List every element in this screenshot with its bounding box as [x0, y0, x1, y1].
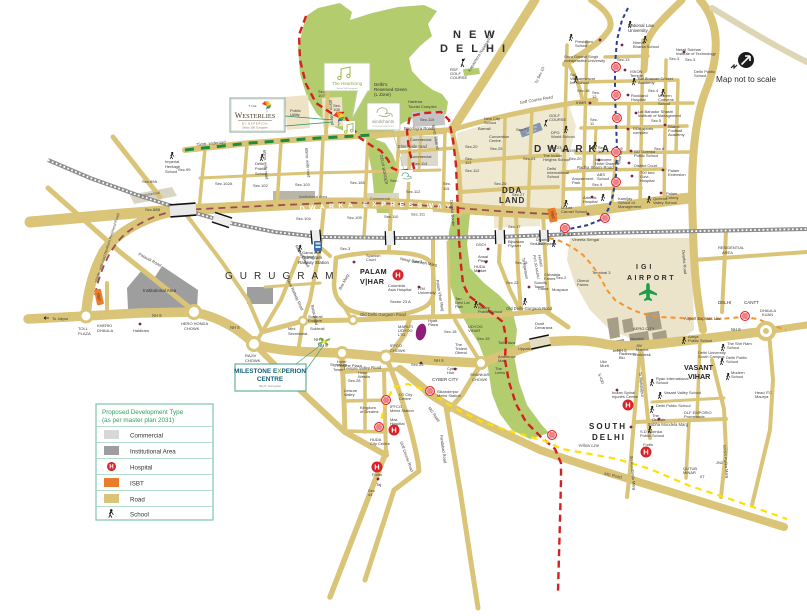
svg-text:BY EXPERION: BY EXPERION: [242, 121, 268, 125]
svg-text:Farms: Farms: [544, 276, 555, 281]
svg-text:Sec.20: Sec.20: [569, 156, 582, 161]
svg-text:Commercial: Commercial: [410, 137, 431, 142]
svg-text:Hospital: Hospital: [631, 97, 646, 102]
svg-text:University: University: [418, 290, 436, 295]
svg-text:Centre: Centre: [399, 396, 412, 401]
svg-text:Uppals: Uppals: [518, 346, 530, 351]
svg-text:Sec.29: Sec.29: [516, 127, 529, 132]
svg-text:South Campus: South Campus: [698, 354, 724, 359]
svg-text:Hub: Hub: [447, 370, 455, 375]
svg-text:Bhartia School: Bhartia School: [633, 44, 659, 49]
svg-text:Sec.25: Sec.25: [411, 362, 424, 367]
svg-text:V|HAR: V|HAR: [360, 277, 385, 286]
svg-text:Leela: Leela: [495, 370, 506, 375]
svg-text:Sec.19: Sec.19: [477, 336, 490, 341]
svg-text:CANTT: CANTT: [744, 300, 759, 305]
svg-text:Sector 23 A: Sector 23 A: [390, 299, 411, 304]
svg-text:Secretariat: Secretariat: [288, 331, 308, 336]
svg-text:Sec.110: Sec.110: [384, 214, 399, 219]
svg-text:Plaza: Plaza: [478, 258, 489, 263]
svg-text:Devarana: Devarana: [535, 325, 553, 330]
svg-text:Extension: Extension: [668, 172, 686, 177]
svg-text:Hospital: Hospital: [130, 465, 152, 472]
svg-text:Maurya: Maurya: [755, 394, 769, 399]
svg-text:Sec.18: Sec.18: [577, 88, 590, 93]
svg-text:Sec.5: Sec.5: [651, 118, 662, 123]
svg-text:AREA: AREA: [722, 250, 733, 255]
svg-text:Sec.13: Sec.13: [617, 57, 630, 62]
svg-text:Sec.27: Sec.27: [512, 192, 525, 197]
svg-text:District Court: District Court: [634, 163, 658, 168]
svg-text:(as per master plan 2031): (as per master plan 2031): [102, 417, 174, 424]
svg-text:Underpass: Underpass: [536, 241, 555, 246]
svg-text:Haldiram: Haldiram: [133, 328, 150, 333]
svg-text:Commercial: Commercial: [370, 197, 390, 201]
svg-text:Radha Soami Road: Radha Soami Road: [577, 165, 614, 170]
svg-text:Barnall: Barnall: [478, 126, 491, 131]
svg-text:Fortis: Fortis: [643, 442, 653, 447]
svg-text:COURSE: COURSE: [450, 75, 467, 80]
svg-text:Sec.25: Sec.25: [490, 146, 503, 151]
svg-text:School: School: [575, 43, 587, 48]
svg-text:Novotel: Novotel: [630, 336, 644, 341]
svg-text:School: School: [727, 345, 739, 350]
svg-text:CHOWK: CHOWK: [245, 358, 261, 363]
svg-text:10: 10: [598, 149, 603, 154]
svg-text:Sec.28: Sec.28: [348, 378, 361, 383]
svg-text:Valley School: Valley School: [653, 200, 677, 205]
svg-text:Tourist Complex: Tourist Complex: [408, 104, 437, 109]
svg-text:Sec.22: Sec.22: [506, 280, 519, 285]
svg-text:Sec.186: Sec.186: [350, 180, 365, 185]
svg-text:School: School: [484, 120, 496, 125]
svg-text:Oberoi: Oberoi: [455, 350, 467, 355]
svg-text:Flyover: Flyover: [508, 243, 522, 248]
svg-text:JN2: JN2: [716, 460, 724, 465]
svg-text:Terminal 3: Terminal 3: [592, 270, 611, 275]
svg-text:IIT: IIT: [700, 474, 705, 479]
svg-text:Enclave: Enclave: [308, 318, 323, 323]
svg-text:WESTERLIES: WESTERLIES: [235, 111, 276, 120]
svg-text:Sec.20: Sec.20: [465, 144, 478, 149]
svg-text:Map not to scale: Map not to scale: [716, 75, 777, 84]
svg-text:Sec.17: Sec.17: [508, 224, 521, 229]
svg-text:Injuries Centre: Injuries Centre: [612, 394, 639, 399]
svg-text:Metro Station: Metro Station: [390, 408, 414, 413]
svg-text:School: School: [726, 359, 738, 364]
svg-text:CHOWK: CHOWK: [390, 348, 406, 353]
svg-text:Heights School: Heights School: [543, 157, 570, 162]
svg-text:Bagdogra Road: Bagdogra Road: [404, 126, 434, 131]
svg-text:107: 107: [318, 93, 325, 98]
svg-text:12: 12: [592, 94, 597, 99]
svg-text:Plaza: Plaza: [428, 322, 439, 327]
svg-text:Hospital: Hospital: [640, 178, 655, 183]
svg-text:Market: Market: [474, 268, 487, 273]
svg-text:Sector 108 Gurugram: Sector 108 Gurugram: [336, 87, 357, 90]
svg-text:Commercial: Commercial: [410, 154, 431, 159]
svg-text:IGI: IGI: [636, 264, 654, 271]
svg-text:Institute of Management: Institute of Management: [638, 113, 682, 118]
svg-text:of Dreams: of Dreams: [360, 409, 378, 414]
svg-text:NH 8: NH 8: [230, 325, 240, 330]
svg-text:GURUGRAM: GURUGRAM: [225, 271, 340, 282]
svg-text:Vasant Valley School: Vasant Valley School: [664, 390, 701, 395]
svg-text:Sec.104: Sec.104: [296, 216, 311, 221]
svg-text:NH-8, Gurugram: NH-8, Gurugram: [259, 384, 282, 388]
svg-text:School: School: [597, 176, 609, 181]
svg-text:City Centre: City Centre: [370, 441, 391, 446]
svg-text:CENTRE: CENTRE: [257, 376, 284, 383]
svg-text:Sec.112: Sec.112: [465, 168, 480, 173]
svg-text:Delhi Public School: Delhi Public School: [656, 403, 691, 408]
svg-text:Mospace: Mospace: [552, 287, 569, 292]
svg-text:Hospital: Hospital: [390, 421, 405, 426]
svg-text:Park: Park: [572, 180, 580, 185]
svg-text:SOUTH: SOUTH: [589, 422, 627, 431]
svg-text:ISBT: ISBT: [130, 481, 144, 488]
svg-text:COURSE: COURSE: [549, 117, 566, 122]
svg-text:NH 8: NH 8: [434, 358, 444, 363]
svg-text:Vineeta Sehgal: Vineeta Sehgal: [572, 237, 599, 242]
svg-text:Valley: Valley: [344, 392, 355, 397]
svg-text:NH 8: NH 8: [731, 327, 741, 332]
svg-text:Sec.110: Sec.110: [420, 117, 435, 122]
svg-text:Sec.88B: Sec.88B: [145, 207, 160, 212]
svg-text:Elmr. wide road: Elmr. wide road: [398, 144, 428, 149]
svg-text:Murti: Murti: [600, 363, 609, 368]
svg-text:Hospital: Hospital: [583, 199, 598, 204]
svg-text:Proposed Development Type: Proposed Development Type: [102, 409, 184, 416]
svg-text:Workdesk: Workdesk: [633, 352, 651, 357]
svg-text:Thana: Thana: [537, 286, 549, 291]
svg-text:Sec.99A: Sec.99A: [142, 179, 157, 184]
svg-text:(L Zone): (L Zone): [374, 92, 391, 97]
svg-text:MILESTONE EXPERION: MILESTONE EXPERION: [234, 368, 306, 375]
svg-text:School: School: [694, 73, 706, 78]
svg-text:MINAR: MINAR: [683, 470, 696, 475]
svg-text:Sec.3: Sec.3: [340, 246, 351, 251]
svg-text:AIRPORT: AIRPORT: [627, 275, 676, 282]
svg-text:THE: THE: [249, 104, 258, 108]
svg-text:Sec.114: Sec.114: [413, 161, 428, 166]
svg-text:Public School: Public School: [640, 433, 664, 438]
svg-text:Institute of Technology: Institute of Technology: [676, 51, 716, 56]
svg-text:VIHAR: VIHAR: [688, 372, 711, 381]
svg-text:Taj: Taj: [376, 482, 381, 487]
svg-text:complex: complex: [633, 130, 648, 135]
svg-text:H: H: [109, 464, 114, 471]
svg-text:Sec.18: Sec.18: [444, 329, 457, 334]
svg-text:IHMR: IHMR: [576, 100, 586, 105]
svg-text:Public School: Public School: [478, 309, 502, 314]
svg-text:Academy: Academy: [638, 80, 655, 85]
svg-text:Old Delhi Gurgaon Road: Old Delhi Gurgaon Road: [360, 312, 407, 317]
svg-text:PLAZA: PLAZA: [78, 331, 91, 336]
svg-text:113: 113: [465, 160, 472, 165]
svg-text:Sec.105: Sec.105: [347, 215, 362, 220]
svg-text:Sector 108, Gurugram: Sector 108, Gurugram: [242, 126, 268, 130]
svg-text:CHOWK: CHOWK: [184, 326, 200, 331]
svg-text:Sec.102A: Sec.102A: [215, 181, 233, 186]
svg-text:Sec.6: Sec.6: [654, 146, 665, 151]
svg-text:VIHAR: VIHAR: [468, 328, 480, 333]
svg-text:Sec.24: Sec.24: [523, 156, 536, 161]
svg-text:KUAN: KUAN: [762, 312, 773, 317]
svg-text:NH 8: NH 8: [314, 337, 324, 342]
svg-text:School: School: [547, 174, 559, 179]
svg-text:Metro Station: Metro Station: [437, 393, 461, 398]
svg-text:Sec.19B: Sec.19B: [561, 148, 576, 153]
svg-text:DELHI: DELHI: [718, 300, 731, 305]
svg-text:Sobha Mondela Marg: Sobha Mondela Marg: [648, 422, 689, 427]
svg-text:Sec.26: Sec.26: [494, 181, 507, 186]
svg-text:Carmel School: Carmel School: [561, 209, 587, 214]
svg-text:VASANT: VASANT: [684, 363, 714, 372]
svg-text:To Jaipur: To Jaipur: [52, 316, 69, 321]
svg-text:University: University: [628, 28, 649, 33]
svg-text:School: School: [130, 512, 149, 519]
svg-text:World School: World School: [551, 134, 575, 139]
svg-text:115: 115: [443, 186, 450, 191]
svg-text:Sec.3: Sec.3: [685, 57, 696, 62]
svg-text:Sec.102: Sec.102: [253, 183, 268, 188]
svg-text:Promenade: Promenade: [684, 414, 705, 419]
svg-text:windchants: windchants: [372, 119, 395, 124]
svg-text:Public School: Public School: [634, 153, 658, 158]
svg-text:LTD.: LTD.: [398, 332, 406, 337]
svg-text:Academy: Academy: [668, 132, 685, 137]
svg-text:School: School: [658, 101, 670, 106]
svg-text:LAND: LAND: [499, 196, 525, 205]
svg-text:Toll Plaza: Toll Plaza: [498, 340, 516, 345]
svg-text:Public School: Public School: [688, 338, 712, 343]
svg-text:EXPERION DEVELOPER: EXPERION DEVELOPER: [373, 126, 394, 128]
svg-text:CYBER CITY: CYBER CITY: [432, 377, 458, 382]
svg-text:PALAM: PALAM: [360, 267, 387, 276]
svg-text:Sec.112: Sec.112: [406, 189, 421, 194]
svg-text:AERO CITY: AERO CITY: [633, 326, 655, 331]
svg-text:Old Delhi-Gurgaon Road: Old Delhi-Gurgaon Road: [506, 306, 553, 311]
svg-text:Centre: Centre: [489, 138, 502, 143]
svg-text:Sec.23: Sec.23: [549, 145, 562, 150]
svg-text:Farms: Farms: [577, 282, 588, 287]
svg-text:NH 8: NH 8: [152, 313, 162, 318]
svg-text:Sukhrali: Sukhrali: [310, 326, 325, 331]
svg-text:Indraprastha University: Indraprastha University: [564, 58, 605, 63]
svg-text:Park: Park: [455, 304, 463, 309]
svg-text:Management: Management: [618, 204, 642, 209]
svg-text:Blu: Blu: [619, 355, 625, 360]
svg-text:44: 44: [368, 492, 373, 497]
svg-text:DELHI: DELHI: [592, 433, 626, 442]
svg-text:Int. School: Int. School: [570, 80, 589, 85]
svg-text:NEW: NEW: [453, 29, 503, 41]
svg-text:Yellow Line: Yellow Line: [578, 443, 600, 448]
svg-text:Court: Court: [366, 257, 377, 262]
svg-text:Road: Road: [130, 497, 145, 504]
svg-text:The Heartsong: The Heartsong: [332, 81, 363, 86]
svg-text:School: School: [731, 374, 743, 379]
svg-text:Sec.111: Sec.111: [411, 212, 426, 217]
svg-text:Institutional Area: Institutional Area: [299, 195, 328, 199]
svg-text:CHOWK: CHOWK: [472, 377, 488, 382]
svg-text:Airport Express Line: Airport Express Line: [684, 316, 722, 321]
svg-text:Institutional Area: Institutional Area: [143, 288, 177, 293]
svg-text:School: School: [165, 169, 177, 174]
svg-text:DSOI: DSOI: [476, 242, 486, 247]
svg-text:Sec.103: Sec.103: [295, 182, 310, 187]
svg-text:DHAULA: DHAULA: [97, 328, 114, 333]
svg-text:School: School: [656, 380, 668, 385]
svg-text:Fortis: Fortis: [372, 472, 382, 477]
svg-text:Commercial: Commercial: [130, 433, 163, 440]
svg-text:Mall: Mall: [498, 358, 505, 363]
svg-text:Sec.3: Sec.3: [669, 56, 680, 61]
svg-text:Institutional Area: Institutional Area: [130, 449, 176, 456]
svg-text:Sec.9: Sec.9: [592, 182, 603, 187]
svg-text:Asia Hospital: Asia Hospital: [388, 287, 411, 292]
